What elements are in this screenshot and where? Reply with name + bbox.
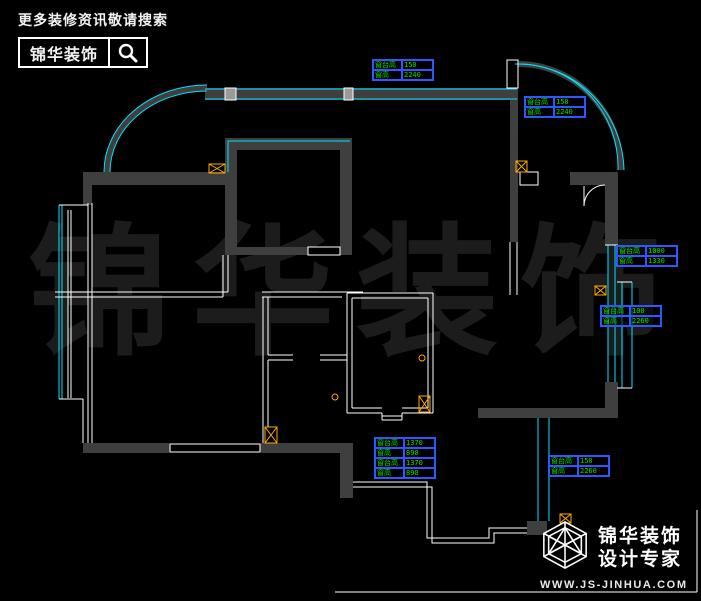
annotation-row: 窗台高 150 [525, 97, 585, 107]
annotation-label: 窗高 [617, 256, 646, 266]
window-annotation-table-3: 窗台高 1000 窗高 1330 [616, 245, 678, 267]
annotation-value: 2260 [578, 466, 609, 476]
annotation-label: 窗高 [549, 466, 578, 476]
annotation-value: 1370 [404, 458, 435, 468]
window-annotation-table-6: 窗台高 150 窗高 2260 [548, 455, 610, 477]
annotation-label: 窗台高 [375, 458, 404, 468]
annotation-value: 2260 [630, 316, 661, 326]
annotation-value: 890 [404, 468, 435, 478]
annotation-row: 窗高 890 [375, 448, 435, 458]
footer-subtitle: 设计专家 [598, 548, 682, 571]
annotation-label: 窗台高 [601, 306, 630, 316]
footer-brand: 锦华装饰 [598, 525, 682, 548]
annotation-label: 窗台高 [375, 438, 404, 448]
annotation-value: 2240 [554, 107, 585, 117]
curved-window-walls [107, 64, 621, 172]
annotation-row: 窗高 890 [375, 468, 435, 478]
door-swing-symbols [584, 185, 605, 206]
window-annotation-table-2: 窗台高 150 窗高 2240 [524, 96, 586, 118]
annotation-row: 窗台高 100 [601, 306, 661, 316]
annotation-row: 窗高 2240 [373, 70, 433, 80]
window-annotation-table-5: 窗台高 1370 窗高 890 窗台高 1370 窗高 890 [374, 437, 436, 479]
annotation-value: 150 [402, 60, 433, 70]
annotation-label: 窗台高 [549, 456, 578, 466]
annotation-label: 窗台高 [525, 97, 554, 107]
footer-branding: 锦华装饰 设计专家 WWW.JS-JINHUA.COM [540, 520, 695, 591]
annotation-row: 窗高 1330 [617, 256, 677, 266]
annotation-value: 2240 [402, 70, 433, 80]
annotation-value: 150 [578, 456, 609, 466]
annotation-value: 1370 [404, 438, 435, 448]
annotation-label: 窗高 [373, 70, 402, 80]
brand-name: 锦华装饰 [20, 41, 108, 65]
annotation-label: 窗台高 [373, 60, 402, 70]
entry-steps [353, 482, 527, 543]
annotation-label: 窗高 [375, 468, 404, 478]
header-branding: 更多装修资讯敬请搜索 锦华装饰 [18, 10, 168, 68]
search-brand-box: 锦华装饰 [18, 37, 148, 68]
cube-logo-icon [540, 520, 590, 575]
annotation-label: 窗高 [375, 448, 404, 458]
annotation-row: 窗高 2240 [525, 107, 585, 117]
annotation-row: 窗高 2260 [549, 466, 609, 476]
annotation-value: 890 [404, 448, 435, 458]
annotation-value: 1330 [646, 256, 677, 266]
annotation-label: 窗高 [525, 107, 554, 117]
annotation-row: 窗高 2260 [601, 316, 661, 326]
annotation-row: 窗台高 1000 [617, 246, 677, 256]
window-annotation-table-4: 窗台高 100 窗高 2260 [600, 305, 662, 327]
annotation-row: 窗台高 1370 [375, 438, 435, 448]
footer-website: WWW.JS-JINHUA.COM [540, 579, 695, 591]
annotation-label: 窗台高 [617, 246, 646, 256]
search-icon [110, 42, 146, 64]
header-tagline: 更多装修资讯敬请搜索 [18, 10, 168, 30]
annotation-row: 窗台高 150 [549, 456, 609, 466]
floorplan-drawing [0, 0, 701, 601]
annotation-value: 1000 [646, 246, 677, 256]
annotation-value: 150 [554, 97, 585, 107]
floorplan-page: 锦华装饰 [0, 0, 701, 601]
annotation-value: 100 [630, 306, 661, 316]
partition-walls [55, 60, 632, 452]
annotation-label: 窗高 [601, 316, 630, 326]
window-annotation-table-1: 窗台高 150 窗高 2240 [372, 59, 434, 81]
annotation-row: 窗台高 150 [373, 60, 433, 70]
annotation-row: 窗台高 1370 [375, 458, 435, 468]
